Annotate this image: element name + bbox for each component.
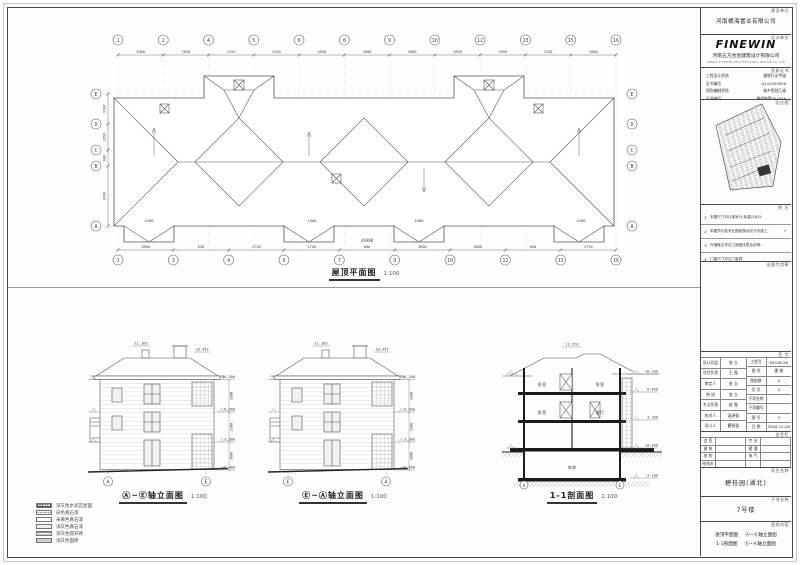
svg-text:7: 7: [338, 258, 341, 264]
owner-tag: 建设单位: [771, 9, 789, 13]
signature-row: 子项名称: [747, 394, 792, 403]
drawing-sheet: 1500 1500 1500 1500 12456891012131516300…: [0, 0, 800, 565]
svg-text:3300: 3300: [410, 392, 414, 400]
svg-text:B: B: [630, 164, 633, 170]
titleblock-keyplan: 区位图: [700, 100, 791, 205]
sheet-content-line: 屋顶平面图Ⓐ~Ⓔ轴立面图: [715, 532, 776, 538]
signature-row: 图 别建 施: [747, 366, 792, 375]
svg-text:C: C: [630, 148, 633, 154]
grid-dimension: 3150: [544, 50, 553, 54]
discipline-sign-cell: [761, 445, 791, 453]
titleblock-subproject: 子项名称 7号楼: [700, 497, 791, 522]
svg-text:12: 12: [477, 38, 483, 44]
elevation-e-a-drawing: 11.163 10.453 10.200 6.600 3.300 ±0.000 …: [268, 338, 418, 488]
signature-row: 项目负责王 强: [701, 368, 746, 379]
signature-column-left: 设计总监张 立 项目负责王 强 审定人张 立 审 核张 立 专业负责赵 强 校对…: [701, 357, 746, 431]
discipline-cell: 建 筑: [701, 445, 716, 453]
grid-dimension: 2850: [182, 50, 191, 54]
cert-tag: 资质证书: [771, 69, 789, 73]
svg-text:1500: 1500: [576, 218, 586, 223]
svg-text:A: A: [106, 480, 109, 486]
svg-text:10: 10: [432, 38, 438, 44]
titleblock-sheet-contents: 图纸内容 屋顶平面图Ⓐ~Ⓔ轴立面图 1-1剖面图Ⓔ~Ⓐ轴立面图: [700, 522, 791, 556]
svg-text:1500: 1500: [414, 218, 424, 223]
svg-text:4: 4: [227, 258, 230, 264]
grid-dimension: 600: [364, 245, 371, 249]
svg-text:15: 15: [568, 38, 574, 44]
check-icon: ✓: [782, 229, 789, 234]
sheet-content-line: 1-1剖面图Ⓔ~Ⓐ轴立面图: [716, 541, 776, 547]
svg-text:E: E: [630, 92, 633, 98]
svg-text:A: A: [630, 224, 633, 230]
legend-swatch-face-brick: [36, 538, 52, 543]
svg-text:10.453: 10.453: [376, 348, 389, 352]
legend-item: 深灰色水泥瓦屋面: [36, 503, 92, 508]
grid-dimension: 3600: [418, 245, 427, 249]
legend-item: 白色真石漆: [36, 510, 92, 515]
svg-text:3600: 3600: [410, 452, 414, 460]
discipline-cell: [746, 460, 761, 468]
svg-text:A: A: [94, 224, 97, 230]
svg-text:9: 9: [388, 38, 391, 44]
signature-row: 页 次3: [747, 385, 792, 394]
grid-dimension: 650: [530, 245, 537, 249]
signature-column-right: 工程号S2016-26 图 别建 施 图纸数4 页 次3 子项名称 子项编号 图…: [746, 357, 792, 431]
svg-text:10.200: 10.200: [402, 375, 415, 379]
designer-name: 河南五方合创建筑设计有限公司: [712, 52, 779, 59]
legend-swatch-white-stone-paint: [36, 510, 52, 515]
svg-text:6: 6: [282, 258, 285, 264]
level-markers: [506, 347, 658, 478]
grid-dimension: 2750: [307, 245, 316, 249]
grid-dimension: 3600: [473, 245, 482, 249]
svg-text:16: 16: [613, 258, 619, 264]
signature-row: 设计总监张 立: [701, 357, 746, 368]
roof-plan-drawing: 1500 1500 1500 1500 12456891012131516300…: [84, 28, 644, 274]
project-name: 碧桂园(湖北): [725, 478, 767, 487]
elevation-a-e-title-text: Ⓐ~Ⓔ轴立面图: [119, 490, 187, 504]
titleblock-project: 项目名称 碧桂园(湖北): [700, 468, 791, 497]
section-scale: 1:100: [601, 494, 617, 500]
svg-text:车库: 车库: [568, 464, 576, 471]
signature-row: 审 核张 立: [701, 389, 746, 400]
grid-dimension: 600: [103, 155, 107, 161]
svg-text:11.163: 11.163: [315, 342, 328, 346]
discipline-sign-cell: [716, 452, 746, 460]
svg-text:16: 16: [613, 38, 619, 44]
elevation-e-a-scale: 1:100: [371, 494, 387, 500]
designer-tag: 设计单位: [771, 36, 789, 40]
legend-item: 深灰色劈开砖: [36, 531, 92, 536]
svg-text:C: C: [94, 148, 97, 154]
svg-text:13: 13: [558, 258, 564, 264]
discipline-sign-cell: [761, 460, 791, 468]
subproject-name: 7号楼: [737, 505, 756, 514]
section-title-text: 1-1剖面图: [547, 490, 597, 504]
svg-text:3300: 3300: [230, 392, 234, 400]
svg-text:-3.100: -3.100: [645, 473, 658, 477]
discipline-sign-cell: [761, 437, 791, 445]
plan-title-text: 屋顶平面图: [329, 267, 380, 281]
svg-text:±0.000: ±0.000: [645, 443, 658, 447]
signature-row: 子项编号: [747, 403, 792, 412]
grid-dimension: 3000: [589, 50, 598, 54]
discipline-cell: 专 业: [746, 437, 761, 445]
signature-row: 图 号3: [747, 413, 792, 422]
floor-slabs: [510, 392, 654, 482]
svg-text:1500: 1500: [144, 218, 154, 223]
svg-text:A: A: [523, 483, 526, 489]
sheet-contents-tag: 图纸内容: [771, 523, 789, 527]
elevation-e-a-title-text: Ⓔ~Ⓐ轴立面图: [299, 490, 367, 504]
svg-text:1500: 1500: [307, 218, 317, 223]
cert-row: 证书编号A141005956: [706, 81, 786, 87]
cert-row: 规划编制资质城乡规划乙级: [706, 88, 786, 94]
project-tag: 项目名称: [771, 469, 789, 473]
door-window-sections: [560, 374, 600, 418]
grid-dimension: 4200: [103, 192, 107, 200]
discipline-cell: 给排水: [701, 460, 716, 468]
discipline-sign-cell: [716, 445, 746, 453]
discipline-sign-cell: [761, 452, 791, 460]
legend-swatch-split-brick: [36, 531, 52, 536]
cert-row: 工程设计资质建筑行业甲级: [706, 73, 786, 79]
site-keyplan-map: [701, 100, 791, 205]
svg-text:10.453: 10.453: [196, 348, 209, 352]
signature-row: 日 期2016-12-26: [747, 422, 792, 431]
svg-text:E: E: [204, 480, 207, 486]
svg-text:2: 2: [162, 38, 165, 44]
grid-dimension: 3000: [408, 50, 417, 54]
grid-dimension: 2850: [317, 50, 326, 54]
note-row: 4门窗尺寸详见门窗表.: [701, 253, 791, 262]
svg-text:1: 1: [116, 258, 119, 264]
svg-text:3600: 3600: [230, 452, 234, 460]
legend-item: 米黄色真石漆: [36, 517, 92, 522]
svg-text:3.300: 3.300: [404, 437, 415, 441]
grid-dimension: 2850: [103, 133, 107, 141]
grid-dimension: 650: [198, 245, 205, 249]
discipline-sign-cell: [716, 437, 746, 445]
elevation-a-e-title: Ⓐ~Ⓔ轴立面图 1:100: [88, 490, 238, 504]
plan-scale: 1:100: [384, 271, 400, 277]
titleblock-designer: 设计单位 FINEWIN 河南五方合创建筑设计有限公司 HENAN FIVEWI…: [700, 35, 791, 68]
signature-row: 图纸数4: [747, 376, 792, 385]
svg-text:卧室: 卧室: [596, 381, 604, 388]
signature-row: 校对人温泽强: [701, 410, 746, 421]
legend-swatch-beige-stone-paint: [36, 517, 52, 522]
discipline-cell: 暖 通: [746, 445, 761, 453]
svg-text:1: 1: [116, 38, 119, 44]
axis-bubbles: E A: [284, 477, 391, 486]
material-legend: 深灰色水泥瓦屋面 白色真石漆 米黄色真石漆 浅灰色真石漆 深灰色劈开砖 浅灰色面…: [36, 503, 92, 543]
svg-text:±0.000: ±0.000: [222, 465, 235, 469]
drawing-area-divider: [8, 287, 700, 288]
svg-text:6.600: 6.600: [404, 407, 415, 411]
signatures-tag: 签 字: [778, 353, 789, 357]
discipline-cell: 会 签: [701, 437, 716, 445]
titleblock-signatures: 签 字 设计总监张 立 项目负责王 强 审定人张 立 审 核张 立 专业负责赵 …: [700, 352, 791, 432]
subproject-tag: 子项名称: [771, 498, 789, 502]
balcony: [90, 418, 100, 442]
section-title: 1-1剖面图 1:100: [502, 490, 662, 504]
legend-item: 浅灰色真石漆: [36, 524, 92, 529]
svg-text:D: D: [630, 122, 633, 128]
designer-logo: FINEWIN: [716, 38, 777, 51]
axis-bubbles: A E: [104, 477, 211, 486]
section-1-1-drawing: 11.970 10.200 6.600 3.300 ±0.000 -3.100 …: [502, 338, 662, 490]
svg-text:6.600: 6.600: [224, 407, 235, 411]
svg-text:6.600: 6.600: [647, 387, 658, 391]
svg-text:E: E: [619, 483, 622, 489]
grid-dimension: 2750: [584, 245, 593, 249]
svg-text:B: B: [94, 164, 97, 170]
elevation-e-a-title: Ⓔ~Ⓐ轴立面图 1:100: [268, 490, 418, 504]
svg-text:3.300: 3.300: [224, 437, 235, 441]
svg-text:±0.000: ±0.000: [402, 465, 415, 469]
svg-text:11.970: 11.970: [566, 343, 579, 347]
svg-text:8: 8: [343, 38, 346, 44]
grid-dimension: 2850: [453, 50, 462, 54]
owner-name: 河南横海置业有限公司: [716, 17, 776, 25]
svg-text:E: E: [286, 480, 289, 486]
grid-dimension: 3300: [103, 105, 107, 113]
grid-dimension: 2750: [252, 245, 261, 249]
balcony: [270, 418, 280, 442]
designer-name-en: HENAN FIVEWIN ARCHITECTURAL DESIGN CO.,L…: [707, 60, 785, 64]
svg-text:3.300: 3.300: [647, 415, 658, 419]
note-row: 1本图尺寸均以毫米计,标高以米计.: [701, 211, 791, 225]
svg-text:4: 4: [207, 38, 210, 44]
svg-text:客厅: 客厅: [596, 409, 604, 416]
plan-total-width: 44400: [361, 238, 374, 243]
svg-text:10: 10: [447, 258, 453, 264]
discipline-sign-cell: [716, 460, 746, 468]
note-row: 3外墙做法详见工程做法表及说明.: [701, 239, 791, 253]
signature-row: 专业负责赵 强: [701, 399, 746, 410]
svg-text:13: 13: [522, 38, 528, 44]
elevation-a-e-drawing: 11.163 10.453 10.200 6.600 3.300 ±0.000 …: [88, 338, 238, 488]
roof-outline: 1500 1500 1500 1500: [114, 76, 614, 242]
legend-swatch-gray-stone-paint: [36, 524, 52, 529]
note-row: 2本图须与各专业图纸核对后方可施工.✓: [701, 225, 791, 239]
svg-text:11.163: 11.163: [135, 342, 148, 346]
signature-row: 审定人张 立: [701, 378, 746, 389]
titleblock-owner: 建设单位 河南横海置业有限公司: [700, 8, 791, 35]
svg-text:5: 5: [252, 38, 255, 44]
grid-dimension: 3000: [363, 50, 372, 54]
svg-text:3300: 3300: [410, 423, 414, 431]
titleblock-notes: 附 注 1本图尺寸均以毫米计,标高以米计. 2本图须与各专业图纸核对后方可施工.…: [700, 205, 791, 262]
svg-text:10.200: 10.200: [222, 375, 235, 379]
svg-text:E: E: [94, 92, 97, 98]
grid-dimension: 3000: [136, 50, 145, 54]
grid-dimension: 3600: [141, 245, 150, 249]
plan-title: 屋顶平面图 1:100: [84, 267, 644, 281]
svg-text:3: 3: [172, 258, 175, 264]
svg-text:12: 12: [502, 258, 508, 264]
signature-row: 设计人曹智强: [701, 420, 746, 431]
titleblock-certificates: 资质证书 工程设计资质建筑行业甲级 证书编号A141005956 规划编制资质城…: [700, 68, 791, 100]
svg-text:10.200: 10.200: [645, 369, 658, 373]
discipline-cell: 结 构: [701, 452, 716, 460]
svg-text:卧室: 卧室: [538, 409, 546, 416]
grid-dimension: 2550: [272, 50, 281, 54]
signature-row: 工程号S2016-26: [747, 357, 792, 366]
elevation-a-e-scale: 1:100: [191, 494, 207, 500]
legend-item: 浅灰色面砖: [36, 538, 92, 543]
disciplines-tag: 会签栏: [776, 433, 790, 437]
svg-text:D: D: [94, 122, 97, 128]
stamp-tag: 出图专用章: [767, 263, 790, 267]
notes-tag: 附 注: [778, 206, 789, 210]
legend-swatch-roof-tile: [36, 503, 52, 508]
grid-dimension: 3150: [227, 50, 236, 54]
titleblock-disciplines: 会签栏 会 签 专 业 建 筑 暖 通 结 构 电 气 给排水: [700, 432, 791, 468]
grid-dimension: 2850: [498, 50, 507, 54]
svg-text:3300: 3300: [230, 423, 234, 431]
svg-text:9: 9: [393, 258, 396, 264]
titleblock-stamp-area: 出图专用章: [700, 262, 791, 352]
discipline-cell: 电 气: [746, 452, 761, 460]
svg-text:6: 6: [298, 38, 301, 44]
svg-text:卧室: 卧室: [538, 381, 546, 388]
svg-text:A: A: [384, 480, 387, 486]
